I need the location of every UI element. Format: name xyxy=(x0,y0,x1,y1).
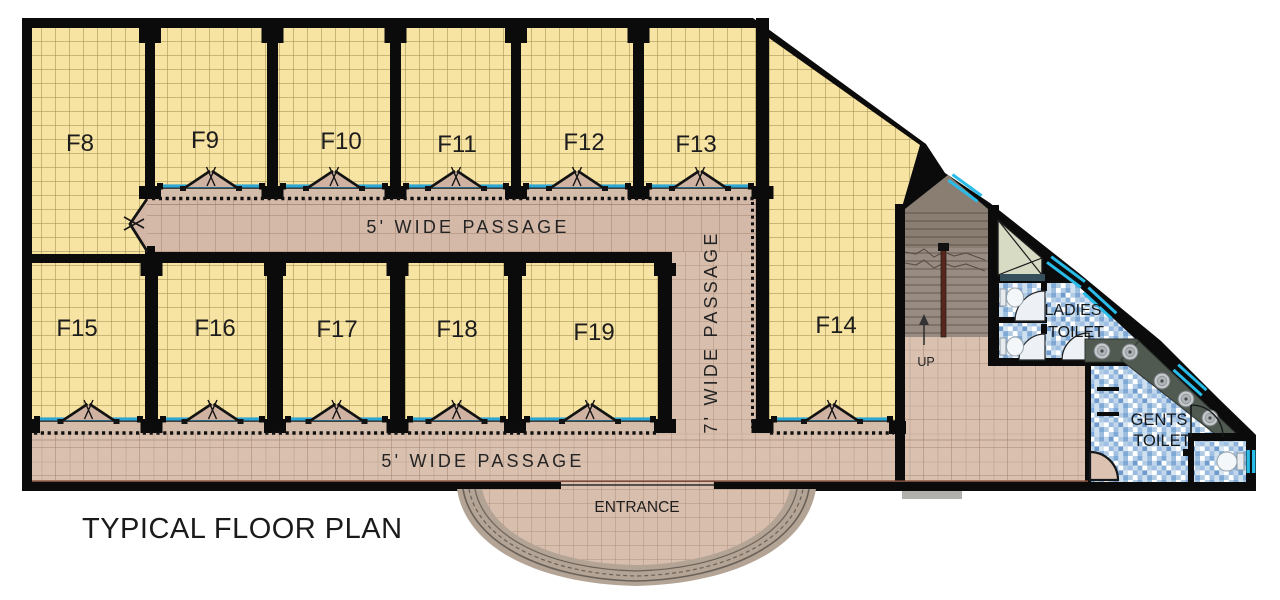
svg-text:F11: F11 xyxy=(437,131,477,158)
svg-text:F19: F19 xyxy=(573,319,614,346)
svg-text:7' WIDE PASSAGE: 7' WIDE PASSAGE xyxy=(701,230,721,433)
svg-text:UP: UP xyxy=(917,355,934,369)
svg-text:F14: F14 xyxy=(815,312,856,339)
svg-text:F13: F13 xyxy=(675,131,716,158)
svg-text:F12: F12 xyxy=(563,129,604,156)
svg-text:GENTS: GENTS xyxy=(1131,411,1188,429)
svg-text:5' WIDE PASSAGE: 5' WIDE PASSAGE xyxy=(366,217,569,237)
svg-text:LADIES: LADIES xyxy=(1045,302,1102,319)
svg-text:F9: F9 xyxy=(191,127,219,154)
svg-text:F10: F10 xyxy=(320,128,361,155)
svg-text:TYPICAL FLOOR PLAN: TYPICAL FLOOR PLAN xyxy=(82,513,403,545)
svg-text:TOILET: TOILET xyxy=(1133,432,1190,450)
svg-text:F18: F18 xyxy=(436,316,477,343)
svg-text:F15: F15 xyxy=(56,315,97,342)
svg-text:ENTRANCE: ENTRANCE xyxy=(594,499,679,516)
svg-text:TOILET: TOILET xyxy=(1048,324,1104,341)
svg-text:F17: F17 xyxy=(316,316,357,343)
svg-text:5' WIDE PASSAGE: 5' WIDE PASSAGE xyxy=(381,451,584,471)
svg-text:F8: F8 xyxy=(66,130,94,157)
svg-text:F16: F16 xyxy=(194,315,235,342)
